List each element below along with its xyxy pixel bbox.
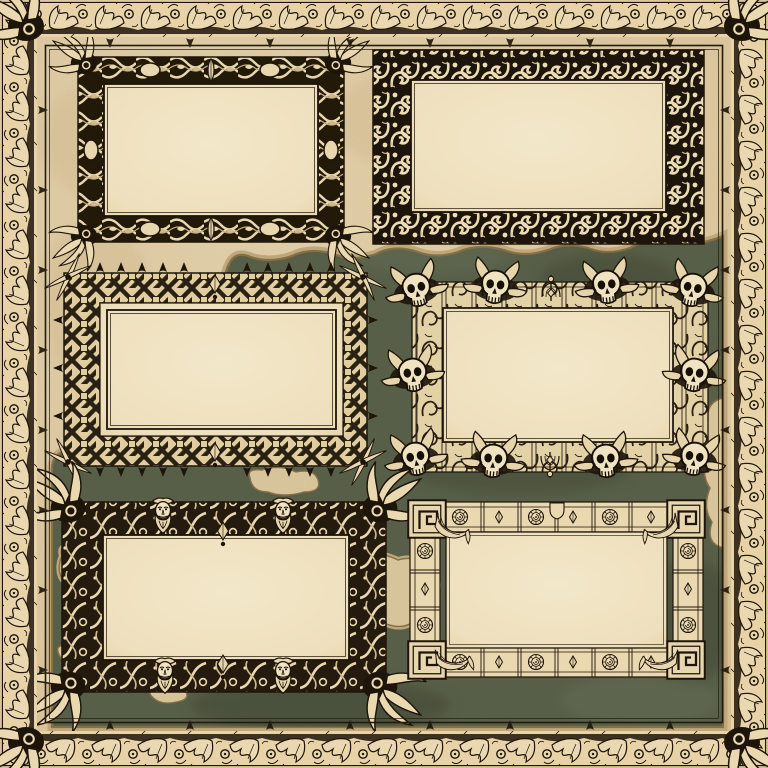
oval-medallion-icon xyxy=(140,63,160,77)
rose-icon xyxy=(453,510,468,525)
rose-icon xyxy=(418,618,433,633)
frame-panel xyxy=(104,84,318,216)
rose-icon xyxy=(529,510,544,525)
rose-icon xyxy=(681,618,696,633)
frame-panel xyxy=(103,535,349,660)
rose-icon xyxy=(418,544,433,559)
oval-medallion-icon xyxy=(140,222,160,236)
shield-icon xyxy=(550,503,564,519)
frame-foliate-scroll xyxy=(373,50,704,244)
frame-skull-foliage xyxy=(377,256,730,481)
frame-panel xyxy=(446,532,667,648)
oval-medallion-icon xyxy=(260,63,280,77)
rose-icon xyxy=(681,544,696,559)
frame-panel xyxy=(100,303,343,436)
frame-interlaced-ribbon xyxy=(44,253,386,485)
rose-icon xyxy=(603,655,618,670)
frame-panel xyxy=(443,308,673,442)
oval-medallion-icon xyxy=(84,140,98,160)
bud-finial-icon xyxy=(208,59,214,81)
rose-icon xyxy=(603,510,618,525)
oval-medallion-icon xyxy=(260,222,280,236)
bud-finial-icon xyxy=(208,218,214,240)
oval-medallion-icon xyxy=(324,140,338,160)
frame-bearded-mask xyxy=(22,462,427,733)
parchment-sheet xyxy=(0,0,768,768)
frame-architectural-panel xyxy=(408,500,705,679)
frame-asset-sheet xyxy=(0,0,768,768)
frame-twisted-vine xyxy=(49,28,373,271)
frame-panel xyxy=(411,80,666,212)
rose-icon xyxy=(529,655,544,670)
